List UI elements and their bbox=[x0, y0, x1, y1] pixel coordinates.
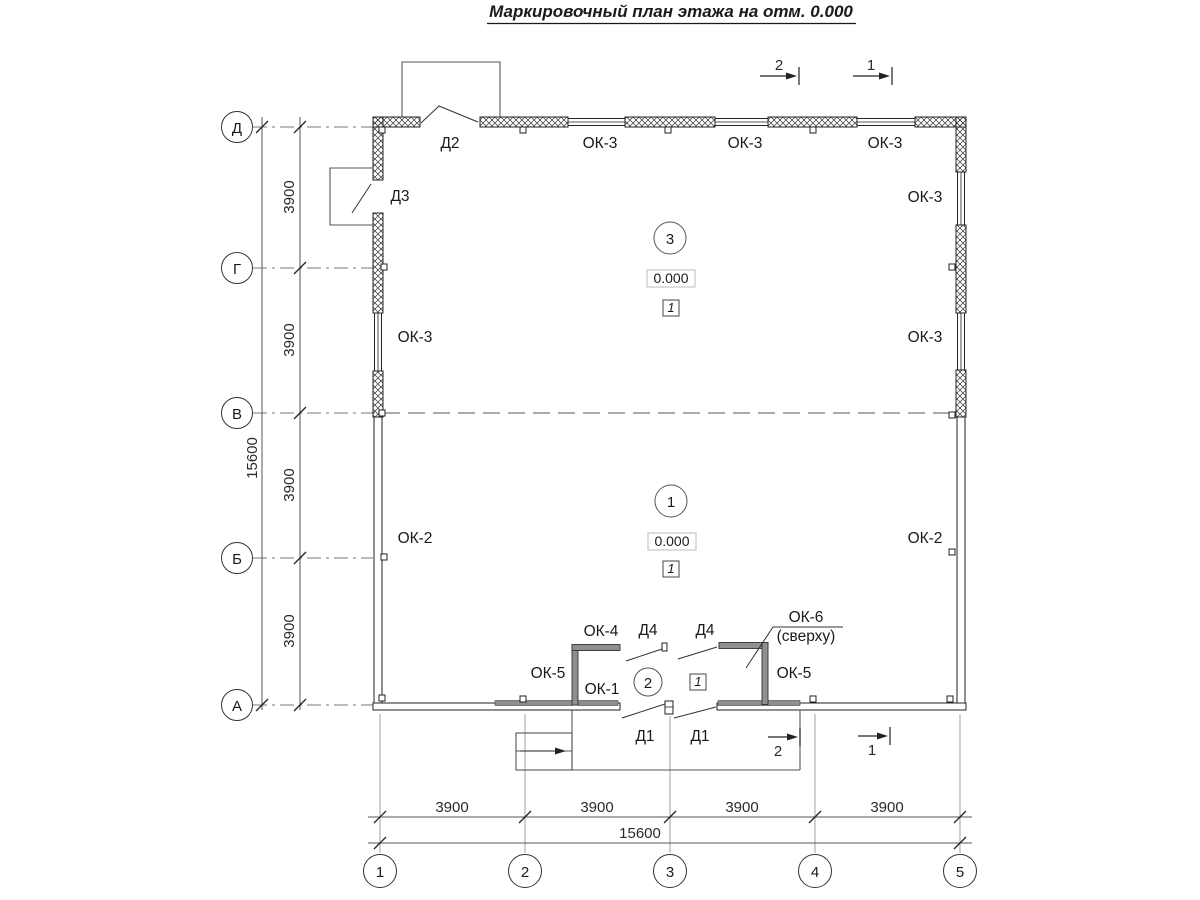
section-label-2-top: 2 bbox=[775, 57, 783, 74]
label-ok3-right-2: ОК-3 bbox=[908, 329, 943, 346]
wall-pier bbox=[373, 117, 383, 180]
axis-bubbles-bottom: 1 2 3 4 5 bbox=[364, 855, 977, 888]
label-ok6: ОК-6 bbox=[789, 609, 824, 626]
entrance-porch bbox=[516, 710, 800, 770]
label-d4-right: Д4 bbox=[695, 622, 714, 639]
label-ok3-left: ОК-3 bbox=[398, 329, 433, 346]
dim-bottom-seg-3: 3900 bbox=[725, 799, 758, 816]
door-d4-right-swing bbox=[678, 647, 717, 659]
wall-pier bbox=[768, 117, 857, 127]
window-openings-top bbox=[568, 119, 915, 126]
room-1-elevation: 0.000 bbox=[654, 533, 689, 549]
door-d2-swing bbox=[421, 106, 478, 123]
bottom-window-sills bbox=[495, 701, 800, 706]
dim-bottom-total: 15600 bbox=[619, 825, 661, 842]
section-label-2-bottom: 2 bbox=[774, 743, 782, 760]
window-labels: ОК-3 ОК-3 ОК-3 ОК-3 ОК-3 ОК-2 ОК-3 ОК-2 … bbox=[398, 135, 943, 698]
axis-bubbles-left: Д Г В Б А bbox=[222, 112, 253, 721]
room-2-floor-type: 1 bbox=[694, 674, 701, 689]
sill-ok5-right bbox=[718, 701, 800, 706]
label-ok3-top-3: ОК-3 bbox=[868, 135, 903, 152]
axis-label-D: Д bbox=[232, 120, 242, 137]
wall-axis-marker-squares bbox=[379, 127, 955, 702]
room-marker-2: 2 1 bbox=[634, 668, 706, 696]
label-ok3-top-1: ОК-3 bbox=[583, 135, 618, 152]
room-2-number: 2 bbox=[644, 675, 652, 692]
door-d1-right-swing bbox=[674, 707, 716, 718]
axis-label-3: 3 bbox=[666, 864, 674, 881]
axis-label-1: 1 bbox=[376, 864, 384, 881]
label-ok2-right: ОК-2 bbox=[908, 530, 943, 547]
wall-pier bbox=[956, 117, 966, 172]
label-d4-left: Д4 bbox=[638, 622, 657, 639]
section-label-1-bottom: 1 bbox=[868, 742, 876, 759]
axis-label-B: Б bbox=[232, 551, 242, 568]
room-3-number: 3 bbox=[666, 231, 674, 248]
label-ok4: ОК-4 bbox=[584, 623, 619, 640]
dim-left-seg-2: 3900 bbox=[281, 323, 298, 356]
label-ok5-left: ОК-5 bbox=[531, 665, 566, 682]
label-d3: Д3 bbox=[390, 188, 409, 205]
label-ok1: ОК-1 bbox=[585, 681, 620, 698]
dim-left-total: 15600 bbox=[244, 437, 261, 479]
wall-pier bbox=[956, 225, 966, 313]
room-marker-1: 1 0.000 1 bbox=[648, 485, 696, 577]
dim-bottom-seg-4: 3900 bbox=[870, 799, 903, 816]
dim-bottom-seg-1: 3900 bbox=[435, 799, 468, 816]
sill-ok5-left bbox=[495, 701, 573, 706]
label-ok2-left: ОК-2 bbox=[398, 530, 433, 547]
axis-label-V: В bbox=[232, 406, 242, 423]
dim-left-seg-4: 3900 bbox=[281, 614, 298, 647]
annex-outline bbox=[330, 168, 373, 225]
room-marker-3: 3 0.000 1 bbox=[647, 222, 695, 316]
axis-grid-lines bbox=[253, 127, 383, 705]
dim-left-seg-1: 3900 bbox=[281, 180, 298, 213]
wall-pier bbox=[480, 117, 568, 127]
axis-label-G: Г bbox=[233, 261, 241, 278]
drawing-sheet: Маркировочный план этажа на отм. 0.000 3… bbox=[0, 0, 1200, 900]
drawing-title: Маркировочный план этажа на отм. 0.000 bbox=[489, 2, 853, 21]
label-d1-left: Д1 bbox=[635, 728, 654, 745]
door-d1-left-swing bbox=[622, 704, 665, 718]
wall-pier bbox=[956, 370, 966, 417]
dim-bottom-seg-2: 3900 bbox=[580, 799, 613, 816]
axis-label-A: А bbox=[232, 698, 242, 715]
label-ok3-top-2: ОК-3 bbox=[728, 135, 763, 152]
porch-outline-top bbox=[402, 62, 500, 117]
room-3-elevation: 0.000 bbox=[653, 270, 688, 286]
section-mark-2-bottom bbox=[768, 728, 800, 746]
axis-label-4: 4 bbox=[811, 864, 819, 881]
axis-label-2: 2 bbox=[521, 864, 529, 881]
drawing-title-block: Маркировочный план этажа на отм. 0.000 bbox=[487, 2, 856, 24]
stairs-direction-arrow bbox=[520, 748, 566, 755]
wall-pier bbox=[625, 117, 715, 127]
room-1-floor-type: 1 bbox=[667, 561, 674, 576]
left-dimension-chain: 3900 3900 3900 3900 15600 bbox=[244, 117, 306, 711]
sill-ok1 bbox=[578, 701, 618, 706]
floor-plan-drawing: Маркировочный план этажа на отм. 0.000 3… bbox=[0, 0, 1200, 900]
room-3-floor-type: 1 bbox=[667, 300, 674, 315]
section-label-1-top: 1 bbox=[867, 57, 875, 74]
window-opening-left bbox=[375, 313, 382, 371]
label-d1-right: Д1 bbox=[690, 728, 709, 745]
label-ok5-right: ОК-5 bbox=[777, 665, 812, 682]
label-ok3-right-1: ОК-3 bbox=[908, 189, 943, 206]
top-porch bbox=[402, 62, 500, 123]
partition-left-top bbox=[572, 645, 620, 651]
dim-left-seg-3: 3900 bbox=[281, 468, 298, 501]
axis-extension-lines-bottom bbox=[380, 714, 960, 853]
room-1-number: 1 bbox=[667, 494, 675, 511]
door-d4-left-swing bbox=[626, 649, 662, 661]
door-d4-post bbox=[662, 643, 667, 651]
wall-plain-left-lower bbox=[374, 417, 382, 710]
left-annex bbox=[330, 168, 373, 225]
door-d1-post bbox=[665, 701, 673, 714]
partition-left-vertical bbox=[572, 645, 578, 705]
wall-plain-right-lower bbox=[957, 417, 965, 710]
door-d3-swing bbox=[352, 184, 371, 213]
partition-right-vertical bbox=[762, 643, 768, 705]
wall-pier bbox=[373, 213, 383, 313]
label-d2: Д2 bbox=[440, 135, 459, 152]
axis-label-5: 5 bbox=[956, 864, 964, 881]
label-ok6-note: (сверху) bbox=[777, 628, 836, 645]
